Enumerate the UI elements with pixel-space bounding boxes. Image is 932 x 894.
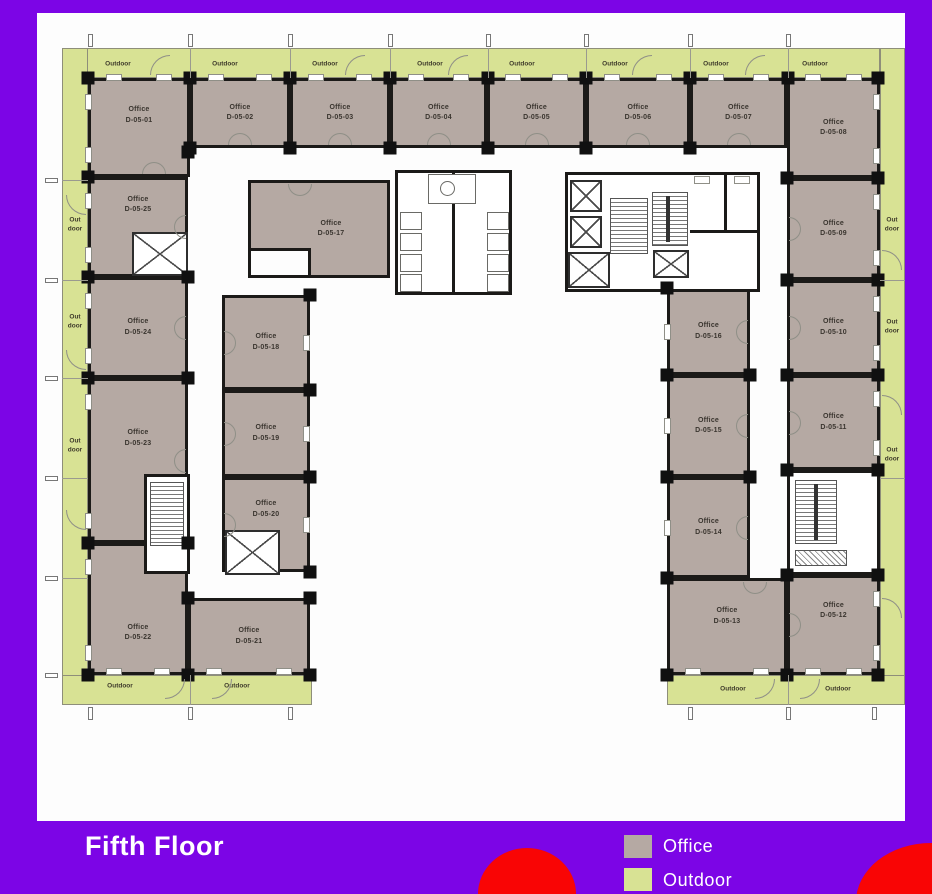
room-label: OfficeD-05-24 (125, 317, 152, 338)
elevator-shaft (653, 250, 689, 278)
window-symbol (85, 247, 92, 263)
outdoor-label: Outdoor (212, 59, 238, 68)
room-id-label: D-05-05 (523, 113, 550, 124)
room-type-label: Office (695, 321, 722, 332)
room-id-label: D-05-16 (695, 332, 722, 343)
window-symbol (308, 74, 324, 81)
window-symbol (873, 391, 880, 407)
room-office: OfficeD-05-21 (188, 598, 310, 675)
window-symbol (685, 668, 701, 675)
grid-line (190, 675, 191, 705)
outdoor-side-label-line: door (68, 225, 82, 234)
structural-column (661, 369, 674, 382)
window-symbol (85, 193, 92, 209)
room-type-label: Office (253, 423, 280, 434)
structural-column (82, 171, 95, 184)
structural-column (384, 142, 397, 155)
window-symbol (256, 74, 272, 81)
room-type-label: Office (126, 105, 153, 116)
room-id-label: D-05-11 (820, 423, 846, 434)
room-type-label: Office (523, 103, 550, 114)
double-door (224, 422, 236, 446)
grid-tick (88, 707, 93, 720)
elevator-shaft (568, 252, 610, 288)
structural-column (781, 569, 794, 582)
room-label: OfficeD-05-19 (253, 423, 280, 444)
window-symbol (873, 94, 880, 110)
room-type-label: Office (625, 103, 652, 114)
door-leaf (439, 133, 451, 145)
room-id-label: D-05-12 (820, 611, 847, 622)
grid-line (880, 478, 905, 479)
structural-column (661, 669, 674, 682)
structural-column (744, 369, 757, 382)
window-symbol (873, 591, 880, 607)
structural-column (872, 369, 885, 382)
elevator-shaft (570, 216, 602, 248)
grid-tick (688, 34, 693, 47)
grid-tick (45, 376, 58, 381)
core-stairwell (652, 192, 688, 246)
room-id-label: D-05-14 (695, 528, 722, 539)
grid-tick (288, 34, 293, 47)
legend-label-outdoor: Outdoor (663, 870, 732, 891)
outdoor-side-label-line: Out (68, 216, 82, 225)
room-id-label: D-05-23 (125, 439, 152, 450)
room-type-label: Office (725, 103, 752, 114)
door-leaf (174, 461, 186, 473)
window-symbol (85, 147, 92, 163)
window-symbol (303, 426, 310, 442)
grid-tick (88, 34, 93, 47)
grid-line (62, 478, 88, 479)
outdoor-side-label-line: door (885, 225, 899, 234)
structural-column (182, 537, 195, 550)
window-symbol (106, 668, 122, 675)
double-door (789, 217, 801, 241)
room-id-label: D-05-06 (625, 113, 652, 124)
outdoor-side-label-line: Out (885, 216, 899, 225)
grid-tick (45, 278, 58, 283)
door-leaf (789, 217, 801, 229)
door-leaf (427, 133, 439, 145)
room-type-label: Office (695, 517, 722, 528)
double-door (736, 516, 748, 540)
outdoor-side-label: Outdoor (885, 216, 899, 235)
window-symbol (154, 668, 170, 675)
door-leaf (626, 133, 638, 145)
room-type-label: Office (318, 219, 345, 230)
toilet-stall (487, 233, 509, 251)
outdoor-side-label-line: door (68, 446, 82, 455)
door-leaf (736, 332, 748, 344)
room-id-label: D-05-03 (327, 113, 354, 124)
double-door (288, 184, 312, 196)
window-symbol (303, 335, 310, 351)
door-leaf (174, 328, 186, 340)
door-leaf (224, 331, 236, 343)
door-leaf (240, 133, 252, 145)
window-symbol (753, 668, 769, 675)
stair-rail (666, 196, 670, 242)
door-leaf (789, 316, 801, 328)
door-leaf (789, 625, 801, 637)
structural-column (304, 289, 317, 302)
structural-column (872, 569, 885, 582)
structural-column (661, 282, 674, 295)
double-door (626, 133, 650, 145)
room-label: OfficeD-05-15 (695, 416, 722, 437)
room-id-label: D-05-04 (425, 113, 452, 124)
door-leaf (736, 516, 748, 528)
room-label: OfficeD-05-17 (318, 219, 345, 240)
window-symbol (805, 668, 821, 675)
room-label: OfficeD-05-01 (126, 105, 153, 126)
room-type-label: Office (820, 219, 847, 230)
room-label: OfficeD-05-12 (820, 601, 847, 622)
structural-column (304, 669, 317, 682)
structural-column (82, 669, 95, 682)
room-label: OfficeD-05-10 (820, 317, 847, 338)
room-id-label: D-05-07 (725, 113, 752, 124)
door-leaf (228, 133, 240, 145)
door-leaf (525, 133, 537, 145)
double-door (743, 582, 767, 594)
room-id-label: D-05-10 (820, 328, 847, 339)
structural-column (580, 142, 593, 155)
legend-swatch-outdoor (624, 868, 652, 891)
room-id-label: D-05-17 (318, 229, 345, 240)
grid-line (880, 280, 905, 281)
door-leaf (328, 133, 340, 145)
door-leaf (174, 449, 186, 461)
elevator-shaft (570, 180, 602, 212)
structural-column (872, 172, 885, 185)
grid-tick (786, 34, 791, 47)
window-symbol (708, 74, 724, 81)
room-type-label: Office (236, 626, 263, 637)
room-type-label: Office (125, 428, 152, 439)
window-symbol (356, 74, 372, 81)
room-label: OfficeD-05-05 (523, 103, 550, 124)
window-symbol (85, 94, 92, 110)
grid-line (62, 378, 88, 379)
outdoor-side-label-line: door (885, 327, 899, 336)
legend-label-office: Office (663, 836, 713, 857)
stairwell-left-flight (150, 482, 184, 546)
door-leaf (174, 227, 186, 239)
door-leaf (736, 320, 748, 332)
outdoor-side-label: Outdoor (885, 318, 899, 337)
door-leaf (537, 133, 549, 145)
window-symbol (276, 668, 292, 675)
double-door (789, 316, 801, 340)
door-leaf (224, 525, 236, 537)
window-symbol (85, 559, 92, 575)
door-leaf (224, 422, 236, 434)
door-leaf (154, 162, 166, 174)
structural-column (684, 142, 697, 155)
room-type-label: Office (227, 103, 254, 114)
double-door (789, 411, 801, 435)
structural-column (781, 172, 794, 185)
structural-column (182, 592, 195, 605)
grid-tick (45, 178, 58, 183)
double-door (142, 162, 166, 174)
outdoor-label: Outdoor (703, 59, 729, 68)
room-label: OfficeD-05-20 (253, 499, 280, 520)
room-type-label: Office (820, 601, 847, 612)
window-symbol (85, 394, 92, 410)
room-type-label: Office (820, 317, 847, 328)
double-door (736, 414, 748, 438)
grid-line (788, 48, 789, 78)
window-symbol (85, 513, 92, 529)
room-label: OfficeD-05-25 (125, 195, 152, 216)
outdoor-side-label-line: Out (68, 313, 82, 322)
structural-column (661, 471, 674, 484)
structural-column (482, 142, 495, 155)
room-office: OfficeD-05-13 (667, 578, 787, 675)
room-label: OfficeD-05-13 (714, 606, 741, 627)
structural-column (781, 274, 794, 287)
window-symbol (604, 74, 620, 81)
room-type-label: Office (125, 623, 152, 634)
door-leaf (727, 133, 739, 145)
room-label: OfficeD-05-11 (820, 412, 846, 433)
door-leaf (755, 582, 767, 594)
outdoor-label: Outdoor (107, 681, 133, 690)
door-leaf (789, 423, 801, 435)
grid-tick (486, 34, 491, 47)
window-symbol (873, 148, 880, 164)
toilet-stall (400, 254, 422, 272)
structural-column (304, 566, 317, 579)
room-office: OfficeD-05-24 (88, 277, 188, 378)
outdoor-label: Outdoor (105, 59, 131, 68)
door-leaf (638, 133, 650, 145)
outdoor-side-label: Outdoor (68, 313, 82, 332)
room-office: OfficeD-05-08 (787, 78, 880, 178)
room-id-label: D-05-08 (820, 128, 847, 139)
grid-tick (872, 707, 877, 720)
grid-tick (188, 34, 193, 47)
room-label: OfficeD-05-14 (695, 517, 722, 538)
grid-line (788, 675, 789, 705)
structural-column (304, 592, 317, 605)
door-leaf (224, 343, 236, 355)
room-type-label: Office (820, 118, 847, 129)
door-leaf (743, 582, 755, 594)
room-id-label: D-05-19 (253, 434, 280, 445)
outdoor-side-label-line: Out (885, 318, 899, 327)
structural-column (304, 384, 317, 397)
window-symbol (156, 74, 172, 81)
room-type-label: Office (125, 317, 152, 328)
door-leaf (736, 414, 748, 426)
window-symbol (805, 74, 821, 81)
double-door (224, 331, 236, 355)
toilet-stall (487, 212, 509, 230)
toilet-stall (400, 274, 422, 292)
room-label: OfficeD-05-09 (820, 219, 847, 240)
structural-column (872, 669, 885, 682)
door-leaf (739, 133, 751, 145)
structural-column (82, 72, 95, 85)
room-type-label: Office (820, 412, 846, 423)
outdoor-side-label: Outdoor (68, 216, 82, 235)
room-type-label: Office (327, 103, 354, 114)
stair-hatch (795, 550, 847, 566)
structural-column (781, 369, 794, 382)
door-leaf (789, 229, 801, 241)
door-leaf (174, 316, 186, 328)
outdoor-label: Outdoor (417, 59, 443, 68)
room-id-label: D-05-02 (227, 113, 254, 124)
double-door (174, 449, 186, 473)
window-symbol (753, 74, 769, 81)
grid-line (62, 280, 88, 281)
window-symbol (846, 668, 862, 675)
vent-window (694, 176, 710, 184)
grid-line (62, 578, 88, 579)
room-id-label: D-05-18 (253, 343, 280, 354)
door-leaf (789, 613, 801, 625)
door-leaf (789, 328, 801, 340)
outdoor-label: Outdoor (509, 59, 535, 68)
grid-tick (388, 34, 393, 47)
room-type-label: Office (714, 606, 741, 617)
room-id-label: D-05-09 (820, 229, 847, 240)
door-leaf (736, 528, 748, 540)
toilet-stall (487, 254, 509, 272)
room-id-label: D-05-22 (125, 633, 152, 644)
double-door (525, 133, 549, 145)
window-symbol (453, 74, 469, 81)
room-label: OfficeD-05-04 (425, 103, 452, 124)
core-room-divider (724, 175, 727, 230)
window-symbol (664, 324, 671, 340)
room-id-label: D-05-21 (236, 637, 263, 648)
outdoor-side-label-line: Out (68, 437, 82, 446)
outdoor-label: Outdoor (312, 59, 338, 68)
room-id-label: D-05-01 (126, 116, 153, 127)
door-leaf (224, 513, 236, 525)
window-symbol (873, 645, 880, 661)
door-leaf (736, 426, 748, 438)
grid-line (390, 48, 391, 78)
room-id-label: D-05-15 (695, 426, 722, 437)
window-symbol (664, 418, 671, 434)
window-symbol (208, 74, 224, 81)
grid-tick (45, 673, 58, 678)
room-type-label: Office (253, 499, 280, 510)
outdoor-side-label-line: door (885, 455, 899, 464)
window-symbol (873, 440, 880, 456)
outdoor-label: Outdoor (720, 684, 746, 693)
room-label: OfficeD-05-22 (125, 623, 152, 644)
door-leaf (142, 162, 154, 174)
window-symbol (873, 345, 880, 361)
room-type-label: Office (695, 416, 722, 427)
grid-tick (584, 34, 589, 47)
room-label: OfficeD-05-23 (125, 428, 152, 449)
structural-column (304, 471, 317, 484)
room-type-label: Office (253, 332, 280, 343)
structural-column (82, 537, 95, 550)
toilet-stall (400, 233, 422, 251)
grid-tick (45, 476, 58, 481)
double-door (789, 613, 801, 637)
window-symbol (85, 645, 92, 661)
grid-line (488, 48, 489, 78)
core-room-divider (690, 230, 758, 233)
structural-column (872, 72, 885, 85)
room-label: OfficeD-05-18 (253, 332, 280, 353)
door-leaf (300, 184, 312, 196)
window-symbol (664, 520, 671, 536)
outdoor-side-label: Outdoor (885, 446, 899, 465)
grid-line (586, 48, 587, 78)
room-label: OfficeD-05-02 (227, 103, 254, 124)
structural-column (781, 669, 794, 682)
window-symbol (846, 74, 862, 81)
window-symbol (303, 517, 310, 533)
toilet-stall (400, 212, 422, 230)
structural-column (182, 146, 195, 159)
floor-title: Fifth Floor (85, 831, 224, 862)
structural-column (182, 372, 195, 385)
window-symbol (408, 74, 424, 81)
structural-column (781, 464, 794, 477)
double-door (328, 133, 352, 145)
window-symbol (873, 250, 880, 266)
room-17-notch (251, 248, 311, 275)
structural-column (872, 464, 885, 477)
door-leaf (224, 434, 236, 446)
bathroom-sink (440, 181, 455, 196)
double-door (228, 133, 252, 145)
stair-rail (814, 484, 818, 540)
double-door (224, 513, 236, 537)
outdoor-label: Outdoor (825, 684, 851, 693)
toilet-stall (487, 274, 509, 292)
window-symbol (552, 74, 568, 81)
structural-column (744, 471, 757, 484)
window-symbol (505, 74, 521, 81)
door-leaf (288, 184, 300, 196)
room-id-label: D-05-20 (253, 510, 280, 521)
double-door (174, 316, 186, 340)
grid-line (690, 48, 691, 78)
window-symbol (106, 74, 122, 81)
double-door (736, 320, 748, 344)
outdoor-label: Outdoor (602, 59, 628, 68)
outdoor-side-label-line: door (68, 322, 82, 331)
outdoor-label: Outdoor (802, 59, 828, 68)
grid-line (62, 180, 88, 181)
room-label: OfficeD-05-16 (695, 321, 722, 342)
grid-tick (288, 707, 293, 720)
window-symbol (873, 296, 880, 312)
legend-swatch-office (624, 835, 652, 858)
grid-line (290, 48, 291, 78)
grid-tick (188, 707, 193, 720)
grid-tick (688, 707, 693, 720)
core-stairwell (610, 198, 648, 254)
door-leaf (340, 133, 352, 145)
room-label: OfficeD-05-03 (327, 103, 354, 124)
